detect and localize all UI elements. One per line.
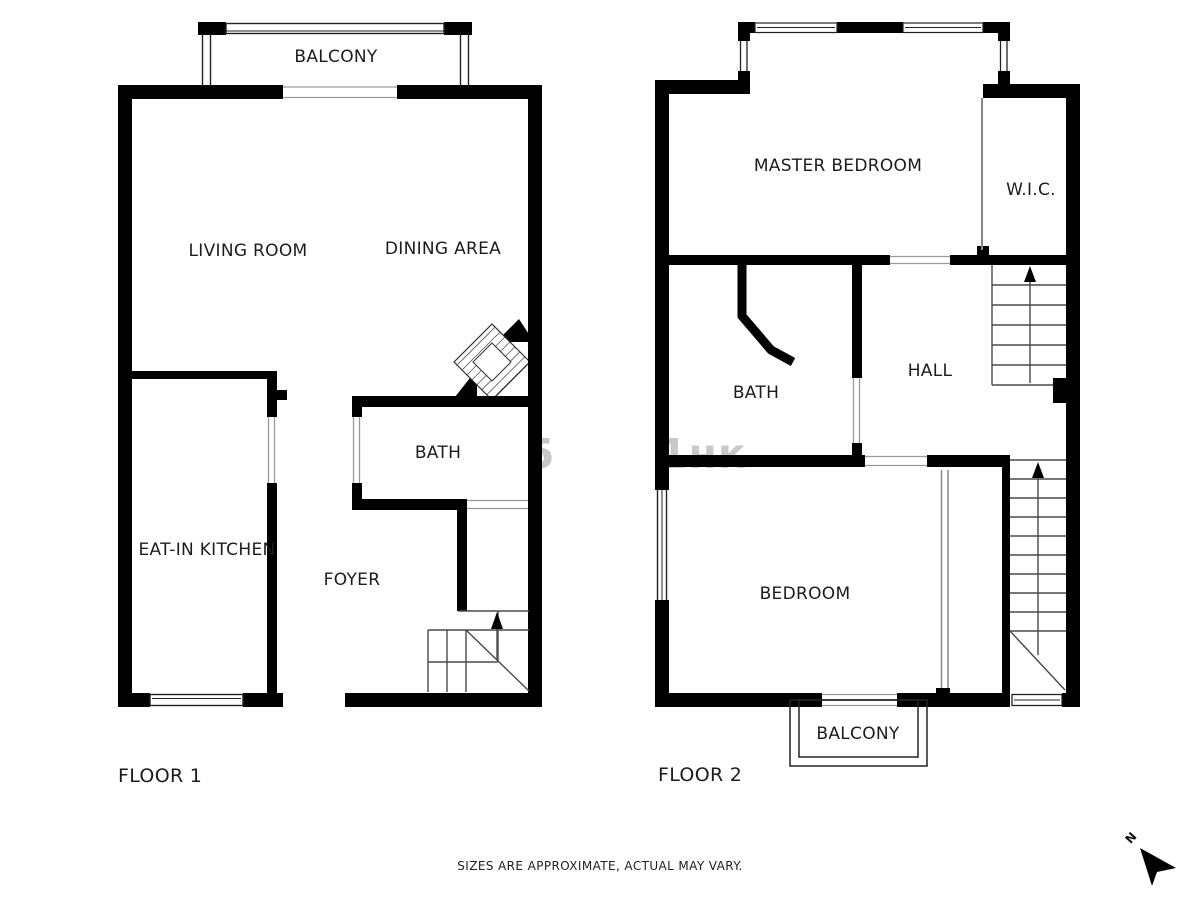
floor2-stairs-lower	[1010, 460, 1066, 690]
floor1-plan	[118, 22, 542, 707]
room-label-living-room: LIVING ROOM	[189, 241, 308, 261]
floorplan-page: { "page": { "footer_note": "SIZES ARE AP…	[0, 0, 1200, 900]
room-label-master-bedroom: MASTER BEDROOM	[754, 156, 922, 176]
room-label-bath-f1: BATH	[415, 443, 461, 463]
floor2-title: FLOOR 2	[658, 764, 742, 786]
room-label-balcony-f1: BALCONY	[294, 47, 377, 67]
floor2-stair-window	[1012, 695, 1062, 706]
floor1-kitchen-window	[150, 695, 243, 706]
floor1-title: FLOOR 1	[118, 765, 202, 787]
room-label-eat-in-kitchen: EAT-IN KITCHEN	[138, 540, 275, 560]
floor2-openings	[822, 257, 950, 706]
room-label-wic: W.I.C.	[1006, 180, 1056, 200]
room-label-balcony-f2: BALCONY	[816, 724, 899, 744]
footer-disclaimer: SIZES ARE APPROXIMATE, ACTUAL MAY VARY.	[457, 859, 742, 873]
floor2-plan	[655, 22, 1080, 766]
floor2-bay-windows	[738, 22, 1010, 85]
floor2-bedroom-window	[655, 490, 669, 600]
fireplace	[454, 319, 534, 400]
room-label-bath-f2: BATH	[733, 383, 779, 403]
floor2-bath-door	[742, 262, 793, 362]
room-label-bedroom: BEDROOM	[760, 584, 851, 604]
room-label-dining-area: DINING AREA	[385, 239, 501, 259]
room-label-foyer: FOYER	[324, 570, 381, 590]
floor2-stairs-upper	[992, 265, 1066, 385]
floor2-landing-partition	[942, 470, 949, 688]
floor1-walls	[118, 85, 542, 707]
floor1-stairs	[428, 611, 529, 692]
room-label-hall: HALL	[908, 361, 953, 381]
north-arrow-icon	[1140, 848, 1176, 886]
floor1-openings	[269, 87, 529, 509]
